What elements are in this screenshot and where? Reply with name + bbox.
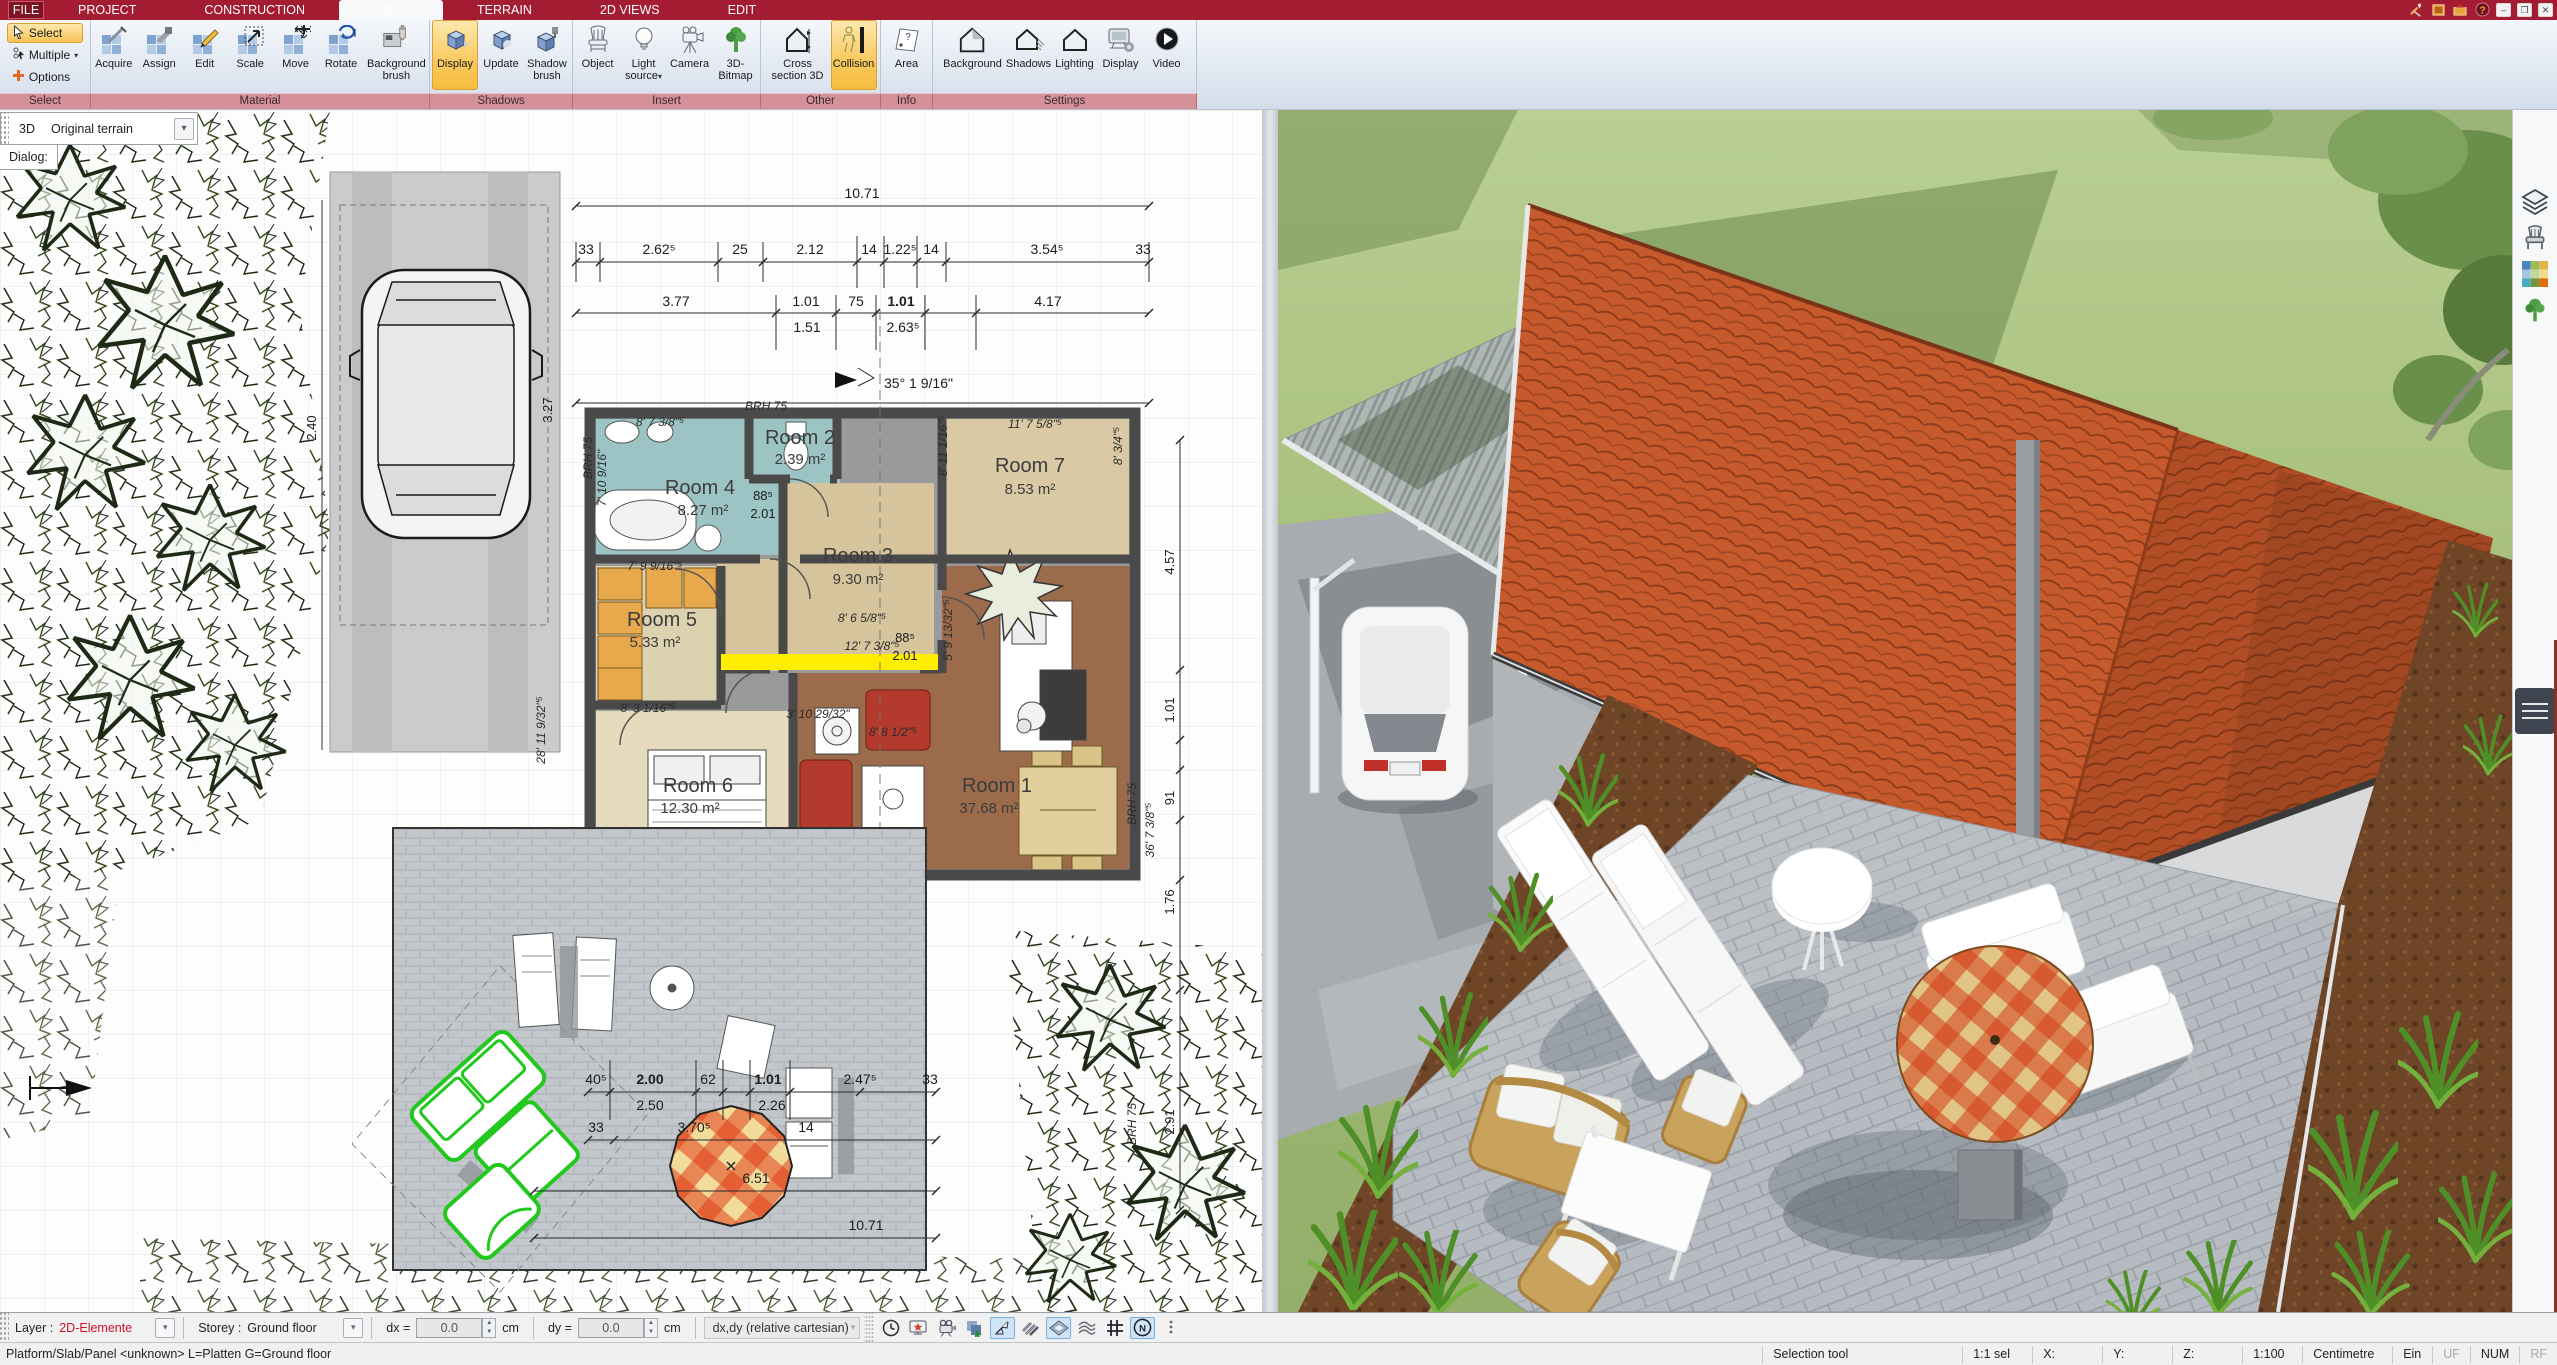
dy-label: dy = [548,1321,572,1335]
svg-text:?: ? [2479,5,2485,16]
collision-icon [839,24,869,56]
svg-text:10.71: 10.71 [844,185,879,201]
close-button[interactable]: ✕ [2538,3,2553,17]
tree-icon [721,24,751,56]
svg-text:Room 2: Room 2 [765,427,835,449]
plan-terrace: 40⁵ 2.00 62 1.01 2.47⁵ 33 2.50 2.26 33 3… [352,828,940,1292]
tab-project[interactable]: PROJECT [44,0,170,20]
svg-text:11' 7 5/8"⁵: 11' 7 5/8"⁵ [1008,417,1062,431]
svg-text:2.62⁵: 2.62⁵ [642,241,675,257]
svg-text:BRH 75: BRH 75 [581,437,595,479]
svg-text:33: 33 [1135,241,1151,257]
cursor-icon [12,25,25,42]
scale-icon [235,24,265,56]
insert-object-button[interactable]: Object [575,20,621,90]
svg-text:2.12: 2.12 [796,241,823,257]
record-icon[interactable] [934,1317,959,1339]
svg-text:7' 10 9/16": 7' 10 9/16" [595,449,609,506]
right-toolbar [2512,110,2557,1312]
svg-text:2.50: 2.50 [636,1097,663,1113]
publish-icon[interactable] [2452,2,2468,17]
ribbon-group-other: Cross section 3D Collision [761,20,881,93]
3d-bitmap-button[interactable]: 3D-Bitmap [713,20,759,90]
svg-text:2.91: 2.91 [1162,1109,1177,1134]
status-tool: Selection tool [1762,1346,1962,1363]
plants-icon[interactable] [2521,296,2549,324]
svg-text:3.27: 3.27 [540,397,555,422]
dx-unit: cm [502,1321,519,1335]
svg-text:8' 3/4"⁵: 8' 3/4"⁵ [1111,427,1125,465]
rotate-icon [326,24,356,56]
svg-text:14: 14 [923,241,939,257]
ribbon-group-select: Select Multiple▾ Options [0,20,91,93]
plan-driveway: 2.40 3.27 28' 11 9/32"⁵ [304,172,560,765]
svg-text:8' 6 5/8"⁵: 8' 6 5/8"⁵ [838,611,886,625]
snapshot-icon[interactable] [906,1317,931,1339]
background-house-icon [958,24,988,56]
cube-icon [440,24,470,56]
render-3d [1278,110,2512,1312]
svg-text:Room 4: Room 4 [665,477,735,499]
contour-icon[interactable] [1074,1317,1099,1339]
move-icon [281,24,311,56]
shadows-display-button[interactable]: Display [432,20,478,90]
status-selection: 1:1 sel [1962,1346,2032,1363]
multiple-icon [12,47,25,63]
status-uf: UF [2432,1346,2470,1363]
svg-text:Room 5: Room 5 [627,609,697,631]
status-x: X: [2032,1346,2102,1363]
collision-button[interactable]: Collision [831,20,877,90]
panel-grip[interactable] [1,113,9,144]
acquire-icon [99,24,129,56]
cube-brush-icon [532,24,562,56]
dx-input[interactable] [416,1318,482,1338]
insert-camera-button[interactable]: Camera [667,20,713,90]
cross-section-icon [783,24,813,56]
tab-edit[interactable]: EDIT [694,0,790,20]
ribbon-group-material: Acquire Assign Edit Scale Move Rotate Ba… [91,20,430,93]
svg-text:8' 11 1/16"⁵: 8' 11 1/16"⁵ [936,416,950,477]
svg-text:6.51: 6.51 [742,1170,769,1186]
svg-text:33: 33 [578,241,594,257]
layer-select[interactable]: 2D-Elemente ▾ [59,1318,175,1338]
svg-text:36' 7 3/8"⁵: 36' 7 3/8"⁵ [1143,803,1157,858]
status-y: Y: [2102,1346,2172,1363]
status-ein[interactable]: Ein [2392,1346,2432,1363]
svg-text:Room 7: Room 7 [995,455,1065,477]
svg-text:9.30 m²: 9.30 m² [833,571,884,588]
storey-label: Storey : [198,1321,241,1335]
svg-text:8.27 m²: 8.27 m² [678,502,729,519]
strip-drag-handle[interactable] [2515,688,2555,734]
svg-text:35° 1 9/16": 35° 1 9/16" [884,375,953,391]
dx-stepper[interactable]: ▲▼ [482,1318,496,1338]
materials-icon[interactable] [2521,260,2549,288]
svg-text:Room 6: Room 6 [663,775,733,797]
svg-text:N: N [1139,1323,1146,1334]
lighting-house-icon [1060,24,1090,56]
minimize-button[interactable]: – [2496,3,2511,17]
svg-text:2.01: 2.01 [892,648,917,663]
status-z: Z: [2172,1346,2242,1363]
acquire-button[interactable]: Acquire [91,20,136,90]
background-brush-button[interactable]: Background brush [364,20,429,90]
menu-bar: FILE PROJECT CONSTRUCTION 3D TERRAIN 2D … [0,0,2557,20]
tools-icon[interactable] [2408,2,2424,17]
svg-text:25: 25 [732,241,748,257]
north-icon[interactable]: N [1130,1317,1155,1339]
svg-text:BRH 75: BRH 75 [1125,1103,1139,1145]
svg-text:2.00: 2.00 [636,1071,663,1087]
shadow-brush-button[interactable]: Shadow brush [524,20,570,90]
ribbon-group-shadows: Display Update Shadow brush [430,20,573,93]
svg-text:1.22⁵: 1.22⁵ [883,241,916,257]
workplane-icon[interactable] [1046,1317,1071,1339]
svg-text:2.39 m²: 2.39 m² [775,451,826,468]
shadows-update-button[interactable]: Update [478,20,524,90]
coordinate-mode-select[interactable]: dx,dy (relative cartesian) ▾ [704,1317,861,1339]
group-label-insert: Insert [573,93,761,109]
group-label-material: Material [91,93,430,109]
svg-text:5' 9 13/32"⁵: 5' 9 13/32"⁵ [941,599,955,661]
svg-text:BRH 75: BRH 75 [745,399,787,413]
tab-2d-views[interactable]: 2D VIEWS [566,0,694,20]
cross-section-3d-button[interactable]: Cross section 3D [765,20,831,90]
help-icon[interactable]: ? [2474,2,2490,17]
svg-text:3.70⁵: 3.70⁵ [677,1119,710,1135]
svg-text:37.68 m²: 37.68 m² [959,800,1018,817]
background-brush-icon [381,24,411,56]
shadow-house-icon [1014,24,1044,56]
dialog-label: Dialog: [9,150,48,164]
svg-text:Room 3: Room 3 [823,545,893,567]
layers-icon[interactable] [2521,188,2549,216]
dy-stepper[interactable]: ▲▼ [644,1318,658,1338]
svg-text:10.71: 10.71 [848,1217,883,1233]
bottom-toolbar: Layer : 2D-Elemente ▾ Storey : Ground fl… [0,1312,2557,1342]
settings-background-button[interactable]: Background [940,20,1006,90]
edit-material-button[interactable]: Edit [182,20,227,90]
svg-text:14: 14 [798,1119,814,1135]
plan-car [350,270,542,538]
svg-text:1.51: 1.51 [793,319,820,335]
status-scale[interactable]: 1:100 [2242,1346,2302,1363]
svg-text:62: 62 [700,1071,716,1087]
ribbon-group-info: ?Area [881,20,933,93]
select-button[interactable]: Select [7,23,83,43]
cube-refresh-icon [486,24,516,56]
scale-button[interactable]: Scale [227,20,272,90]
svg-text:1.76: 1.76 [1162,889,1177,914]
light-source-button[interactable]: Light source▾ [621,20,667,90]
svg-text:33: 33 [922,1071,938,1087]
restore-button[interactable]: ❐ [2517,3,2532,17]
terrain-select[interactable]: Original terrain ▾ [45,117,197,141]
svg-text:5.33 m²: 5.33 m² [630,634,681,651]
ribbon: Select Multiple▾ Options Acquire Assign … [0,20,2557,110]
svg-text:8.53 m²: 8.53 m² [1005,481,1056,498]
view-label: 3D [19,122,35,136]
svg-text:BRH 75: BRH 75 [1125,783,1139,825]
tab-3d[interactable]: 3D [339,0,443,20]
plus-icon [12,69,25,85]
video-button[interactable]: Video [1144,20,1190,90]
layer-label: Layer : [15,1321,53,1335]
furniture-icon[interactable] [2521,224,2549,252]
play-icon [1152,24,1182,56]
ribbon-group-insert: Object Light source▾ Camera 3D-Bitmap [573,20,761,93]
camera-icon [675,24,705,56]
clock-icon[interactable] [878,1317,903,1339]
raster-icon[interactable] [1102,1317,1127,1339]
terrain-select-value: Original terrain [51,122,133,136]
dialog-panel: Dialog: [0,145,58,170]
dy-unit: cm [664,1321,681,1335]
settings-display-button[interactable]: Display [1098,20,1144,90]
hatch-icon[interactable] [1018,1317,1043,1339]
svg-text:2.01: 2.01 [750,506,775,521]
bulb-icon [629,24,659,56]
group-label-info: Info [881,93,933,109]
svg-text:14: 14 [861,241,877,257]
view-3d[interactable] [1278,110,2512,1312]
svg-text:3.54⁵: 3.54⁵ [1030,241,1063,257]
svg-text:?: ? [905,32,911,43]
chevron-down-icon[interactable]: ▾ [174,118,194,140]
floor-plan-drawing: 2.40 3.27 28' 11 9/32"⁵ 10.71 33 2.62⁵ [0,110,1262,1312]
area-button[interactable]: ?Area [884,20,930,90]
group-label-other: Other [761,93,881,109]
svg-text:75: 75 [848,293,864,309]
chair-icon [583,24,613,56]
plan-view-2d[interactable]: 2.40 3.27 28' 11 9/32"⁵ 10.71 33 2.62⁵ [0,110,1262,1312]
display-gear-icon [1106,24,1136,56]
assign-button[interactable]: Assign [136,20,181,90]
svg-text:1.01: 1.01 [1162,697,1177,722]
ribbon-group-labels: Select Material Shadows Insert Other Inf… [0,93,1197,109]
workspace: 2.40 3.27 28' 11 9/32"⁵ 10.71 33 2.62⁵ [0,110,2557,1312]
application-window: FILE PROJECT CONSTRUCTION 3D TERRAIN 2D … [0,0,2557,1365]
status-message: Platform/Slab/Panel <unknown> L=Platten … [6,1347,1762,1361]
svg-text:12.30 m²: 12.30 m² [660,800,719,817]
group-label-select: Select [0,93,91,109]
status-num: NUM [2470,1346,2519,1363]
storey-select[interactable]: Ground floor ▾ [247,1318,363,1338]
layer-select-value: 2D-Elemente [59,1321,151,1335]
move-button[interactable]: Move [273,20,318,90]
options-button[interactable]: Options [7,67,83,87]
toolbar-handle[interactable] [1158,1317,1183,1339]
ribbon-group-settings: Background Shadows Lighting Display Vide… [933,20,1197,93]
area-icon: ? [892,24,922,56]
svg-text:8' 3 1/16"⁵: 8' 3 1/16"⁵ [621,701,676,715]
rotate-button[interactable]: Rotate [318,20,363,90]
tab-construction[interactable]: CONSTRUCTION [170,0,339,20]
svg-text:8' 7 3/8"⁵: 8' 7 3/8"⁵ [636,415,684,429]
svg-text:12' 7 3/8"⁵: 12' 7 3/8"⁵ [845,639,900,653]
edit-icon [190,24,220,56]
group-label-shadows: Shadows [430,93,573,109]
svg-text:Room 1: Room 1 [962,775,1032,797]
tab-terrain[interactable]: TERRAIN [443,0,566,20]
tab-file[interactable]: FILE [8,1,44,19]
status-unit[interactable]: Centimetre [2302,1346,2392,1363]
addon-icon[interactable] [2430,2,2446,17]
svg-text:88⁵: 88⁵ [753,488,773,503]
status-rf: RF [2519,1346,2557,1363]
svg-text:88⁵: 88⁵ [895,630,915,645]
svg-text:33: 33 [588,1119,604,1135]
chevron-down-icon[interactable]: ▾ [155,1318,175,1338]
group-label-settings: Settings [933,93,1197,109]
svg-text:3.77: 3.77 [662,293,689,309]
svg-text:91: 91 [1162,791,1177,805]
settings-shadows-button[interactable]: Shadows [1006,20,1052,90]
svg-text:1.01: 1.01 [754,1071,781,1087]
transfer-icon[interactable] [962,1317,987,1339]
svg-text:2.47⁵: 2.47⁵ [843,1071,876,1087]
view-selector-panel: 3D Original terrain ▾ [0,112,198,145]
svg-text:4.57: 4.57 [1162,549,1177,574]
angle-icon[interactable] [990,1317,1015,1339]
svg-text:1.01: 1.01 [792,293,819,309]
toolbar-grip[interactable] [0,1313,9,1342]
svg-text:2.40: 2.40 [304,415,319,440]
svg-text:40⁵: 40⁵ [585,1071,606,1087]
pane-splitter[interactable] [1262,110,1278,1312]
svg-text:3' 10 29/32": 3' 10 29/32" [786,707,850,721]
svg-text:7' 9 9/16"⁵: 7' 9 9/16"⁵ [628,559,683,573]
svg-text:2.26: 2.26 [758,1097,785,1113]
assign-icon [144,24,174,56]
svg-text:2.63⁵: 2.63⁵ [886,319,919,335]
storey-select-value: Ground floor [247,1321,339,1335]
dx-label: dx = [386,1321,410,1335]
chevron-down-icon[interactable]: ▾ [343,1318,363,1338]
settings-lighting-button[interactable]: Lighting [1052,20,1098,90]
dy-input[interactable] [578,1318,644,1338]
svg-text:4.17: 4.17 [1034,293,1061,309]
coordinate-mode-value: dx,dy (relative cartesian) [713,1321,849,1335]
svg-text:1.01: 1.01 [887,293,914,309]
status-bar: Platform/Slab/Panel <unknown> L=Platten … [0,1342,2557,1365]
multiple-button[interactable]: Multiple▾ [7,45,83,65]
car-3d [1338,607,1478,814]
svg-text:28' 11 9/32"⁵: 28' 11 9/32"⁵ [534,696,548,764]
svg-text:8' 8 1/2"⁵: 8' 8 1/2"⁵ [869,725,917,739]
